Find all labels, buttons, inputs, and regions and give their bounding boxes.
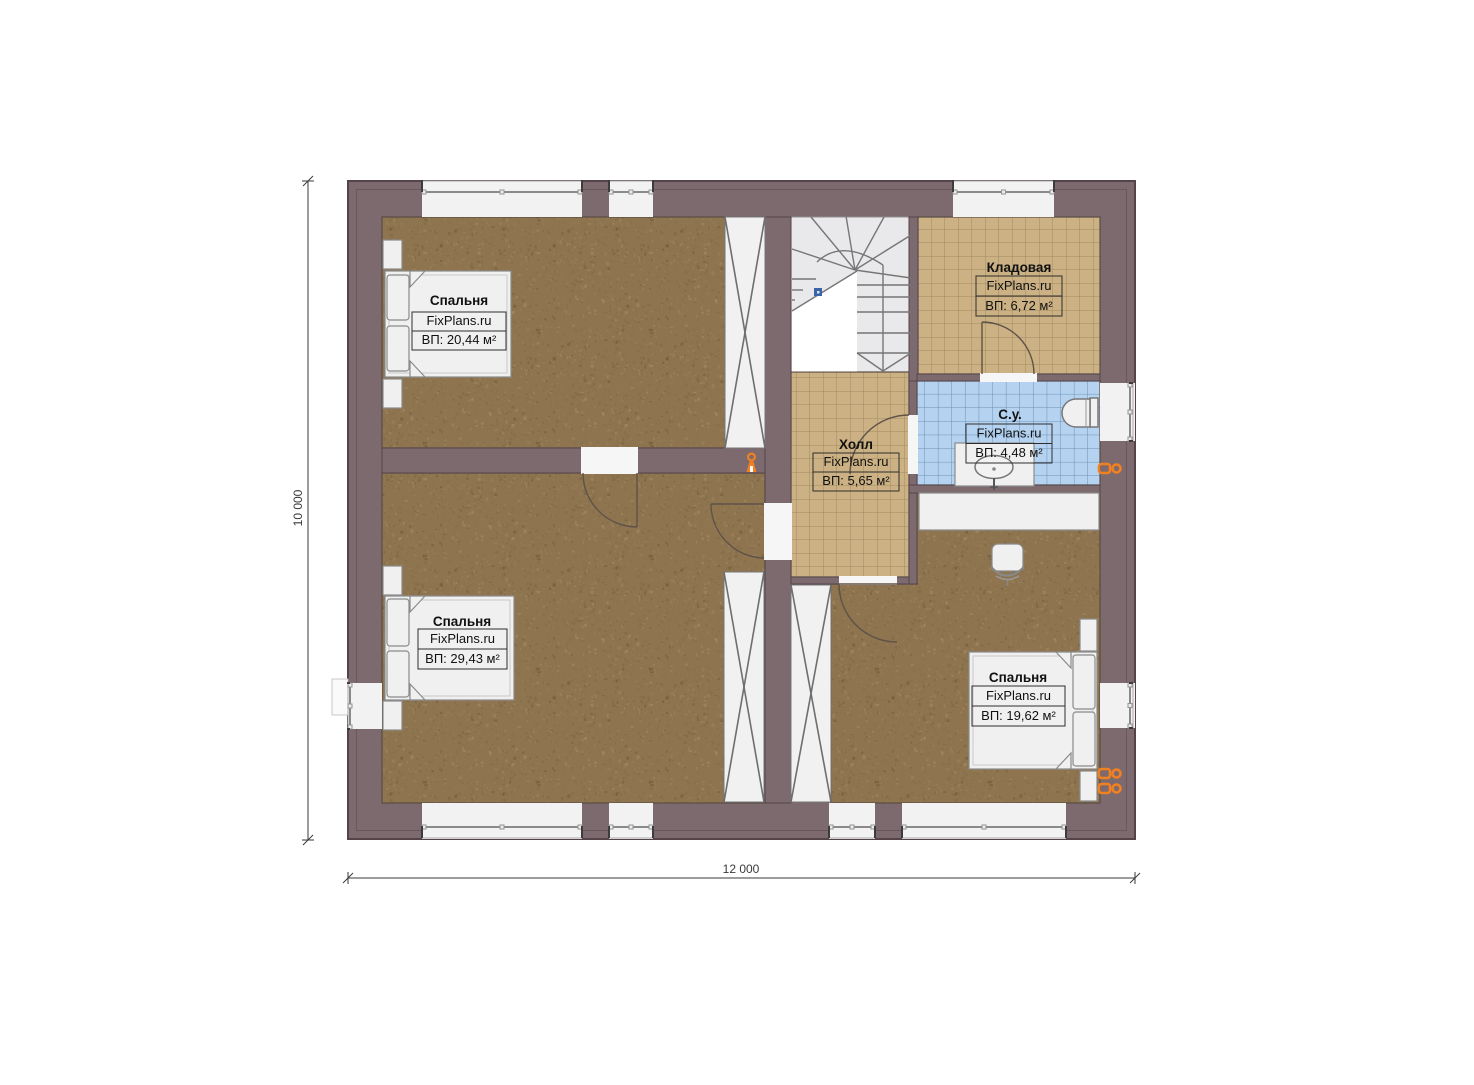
svg-text:Спальня: Спальня — [430, 293, 488, 308]
svg-text:ВП: 6,72 м²: ВП: 6,72 м² — [985, 298, 1053, 313]
svg-text:10 000: 10 000 — [291, 489, 305, 526]
svg-text:Спальня: Спальня — [433, 614, 491, 629]
svg-text:Холл: Холл — [839, 437, 873, 452]
svg-text:ВП: 20,44 м²: ВП: 20,44 м² — [422, 332, 497, 347]
svg-text:FixPlans.ru: FixPlans.ru — [986, 688, 1051, 703]
svg-text:Кладовая: Кладовая — [987, 260, 1052, 275]
svg-text:FixPlans.ru: FixPlans.ru — [430, 631, 495, 646]
svg-text:12 000: 12 000 — [723, 862, 760, 876]
svg-text:ВП: 29,43 м²: ВП: 29,43 м² — [425, 651, 500, 666]
svg-text:FixPlans.ru: FixPlans.ru — [426, 313, 491, 328]
svg-text:FixPlans.ru: FixPlans.ru — [976, 426, 1041, 441]
svg-text:FixPlans.ru: FixPlans.ru — [986, 278, 1051, 293]
svg-text:ВП: 19,62 м²: ВП: 19,62 м² — [981, 708, 1056, 723]
svg-text:Спальня: Спальня — [989, 670, 1047, 685]
svg-text:ВП: 5,65 м²: ВП: 5,65 м² — [822, 473, 890, 488]
svg-text:С.у.: С.у. — [998, 407, 1022, 422]
svg-text:FixPlans.ru: FixPlans.ru — [823, 454, 888, 469]
svg-text:ВП: 4,48 м²: ВП: 4,48 м² — [975, 445, 1043, 460]
